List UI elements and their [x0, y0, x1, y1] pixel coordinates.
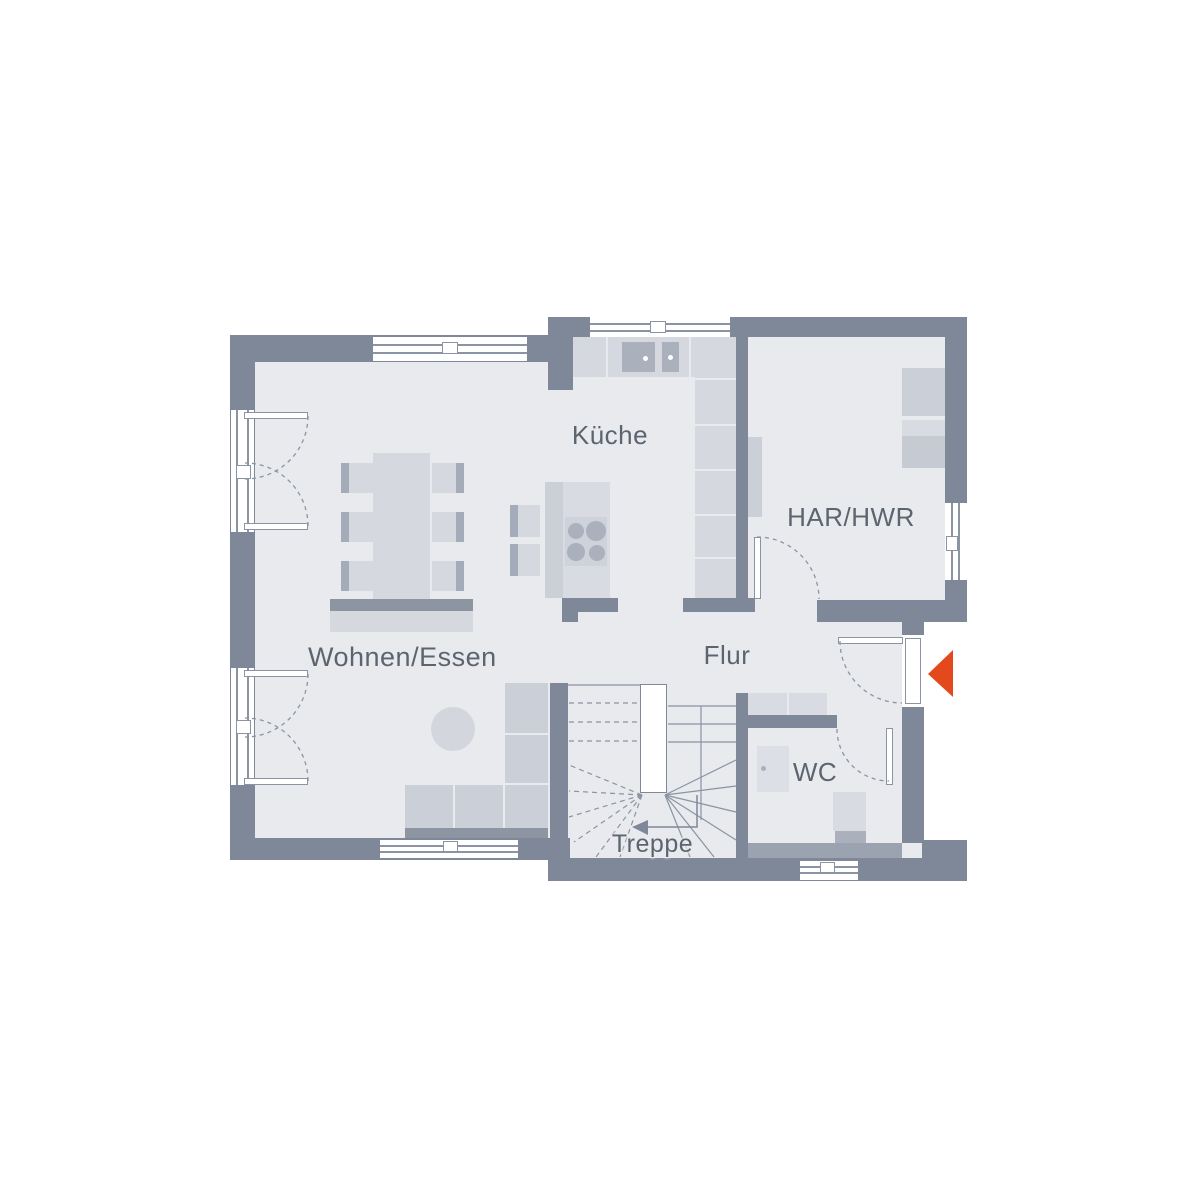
har-door-swing-arc	[757, 537, 819, 599]
entrance-arrow-icon	[928, 650, 953, 697]
plan-annotations-svg	[0, 0, 1200, 1200]
floor-plan-canvas: Küche HAR/HWR Wohnen/Essen Flur WC Trepp…	[0, 0, 1200, 1200]
door-swing-arc	[245, 674, 308, 737]
room-label-flur: Flur	[687, 641, 767, 670]
door-swing-arc	[245, 718, 308, 781]
room-label-treppe: Treppe	[600, 831, 705, 859]
room-label-kueche: Küche	[545, 421, 675, 450]
room-label-wc: WC	[782, 758, 848, 787]
entry-door-swing-arc	[840, 641, 902, 703]
room-label-wohnen-essen: Wohnen/Essen	[308, 643, 494, 673]
door-swing-arc	[245, 416, 308, 479]
room-label-har-hwr: HAR/HWR	[780, 503, 922, 532]
door-swing-arc	[245, 463, 308, 526]
